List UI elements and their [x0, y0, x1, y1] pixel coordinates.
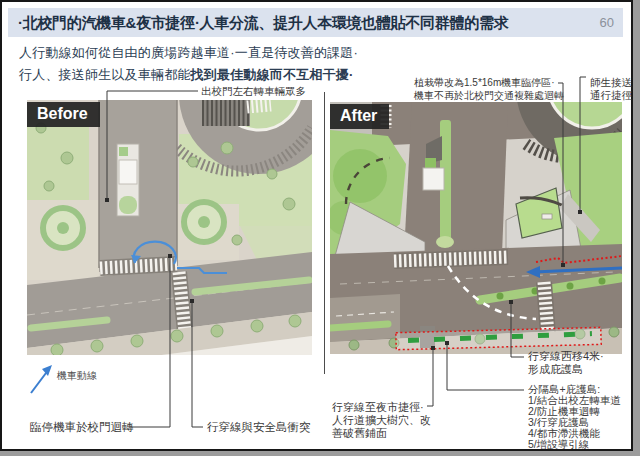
- callout-after-crosswalk-shift: 行穿線西移4米· 形成庇護島: [528, 350, 604, 376]
- after-map-illustration: [330, 102, 622, 354]
- callout-after-planting-strip-line2: 機車不再於北校門交通複雜處迴轉: [414, 89, 564, 102]
- page-number: 60: [600, 8, 614, 37]
- callout-after-nightmarket-line1: 行穿線至夜市捷徑·: [332, 401, 431, 414]
- callout-before-crosswalk-conflict: 行穿線與安全島衝突: [207, 421, 311, 434]
- island-list-item: 5/增設導引線: [528, 439, 621, 450]
- body-line-2-bold: 找到最佳動線而不互相干擾·: [191, 67, 354, 82]
- title-bar: ·北校門的汽機車&夜市捷徑·人車分流、提升人本環境也體貼不同群體的需求 60: [8, 8, 623, 37]
- page-title: ·北校門的汽機車&夜市捷徑·人車分流、提升人本環境也體貼不同群體的需求: [18, 8, 508, 37]
- callout-after-crosswalk-shift-line2: 形成庇護島: [528, 363, 604, 376]
- callout-after-planting-strip: 植栽帶改為1.5*16m機車臨停區· 機車不再於北校門交通複雜處迴轉: [414, 76, 564, 102]
- callout-after-shortcut-line2: 通行捷徑: [590, 89, 632, 102]
- callout-after-planting-strip-line1: 植栽帶改為1.5*16m機車臨停區·: [414, 76, 564, 89]
- callout-after-crosswalk-shift-line1: 行穿線西移4米·: [528, 350, 604, 363]
- slide: ·北校門的汽機車&夜市捷徑·人車分流、提升人本環境也體貼不同群體的需求 60 人…: [0, 0, 633, 451]
- callout-after-shortcut: 師生接送 通行捷徑: [590, 76, 632, 102]
- callout-after-nightmarket-path: 行穿線至夜市捷徑· 人行道擴大樹穴、改 善破舊鋪面: [332, 401, 431, 440]
- callout-before-moto-uturn: 臨停機車於校門迴轉: [30, 421, 134, 434]
- callout-after-nightmarket-line2: 人行道擴大樹穴、改: [332, 414, 431, 427]
- body-line-2: 行人、接送師生以及車輛都能找到最佳動線而不互相干擾·: [19, 66, 354, 84]
- legend-moto-path: 機車動線: [57, 369, 97, 382]
- callout-before-turning-traffic: 出校門左右轉車輛眾多: [201, 85, 306, 98]
- after-label: After: [330, 104, 389, 129]
- panel-divider: [324, 92, 325, 374]
- before-panel: [27, 100, 312, 355]
- after-panel: [330, 102, 622, 354]
- before-map-illustration: [27, 100, 312, 355]
- callout-after-island-list: 分隔島+庇護島: 1/結合出校左轉車道 2/防止機車迴轉 3/行穿庇護島 4/都…: [528, 384, 621, 450]
- body-line-2-normal: 行人、接送師生以及車輛都能: [19, 67, 191, 82]
- callout-after-nightmarket-line3: 善破舊鋪面: [332, 427, 431, 440]
- callout-after-shortcut-line1: 師生接送: [590, 76, 632, 89]
- before-label: Before: [27, 102, 100, 127]
- body-line-1: 人行動線如何從自由的廣場跨越車道·一直是待改善的課題·: [19, 44, 358, 62]
